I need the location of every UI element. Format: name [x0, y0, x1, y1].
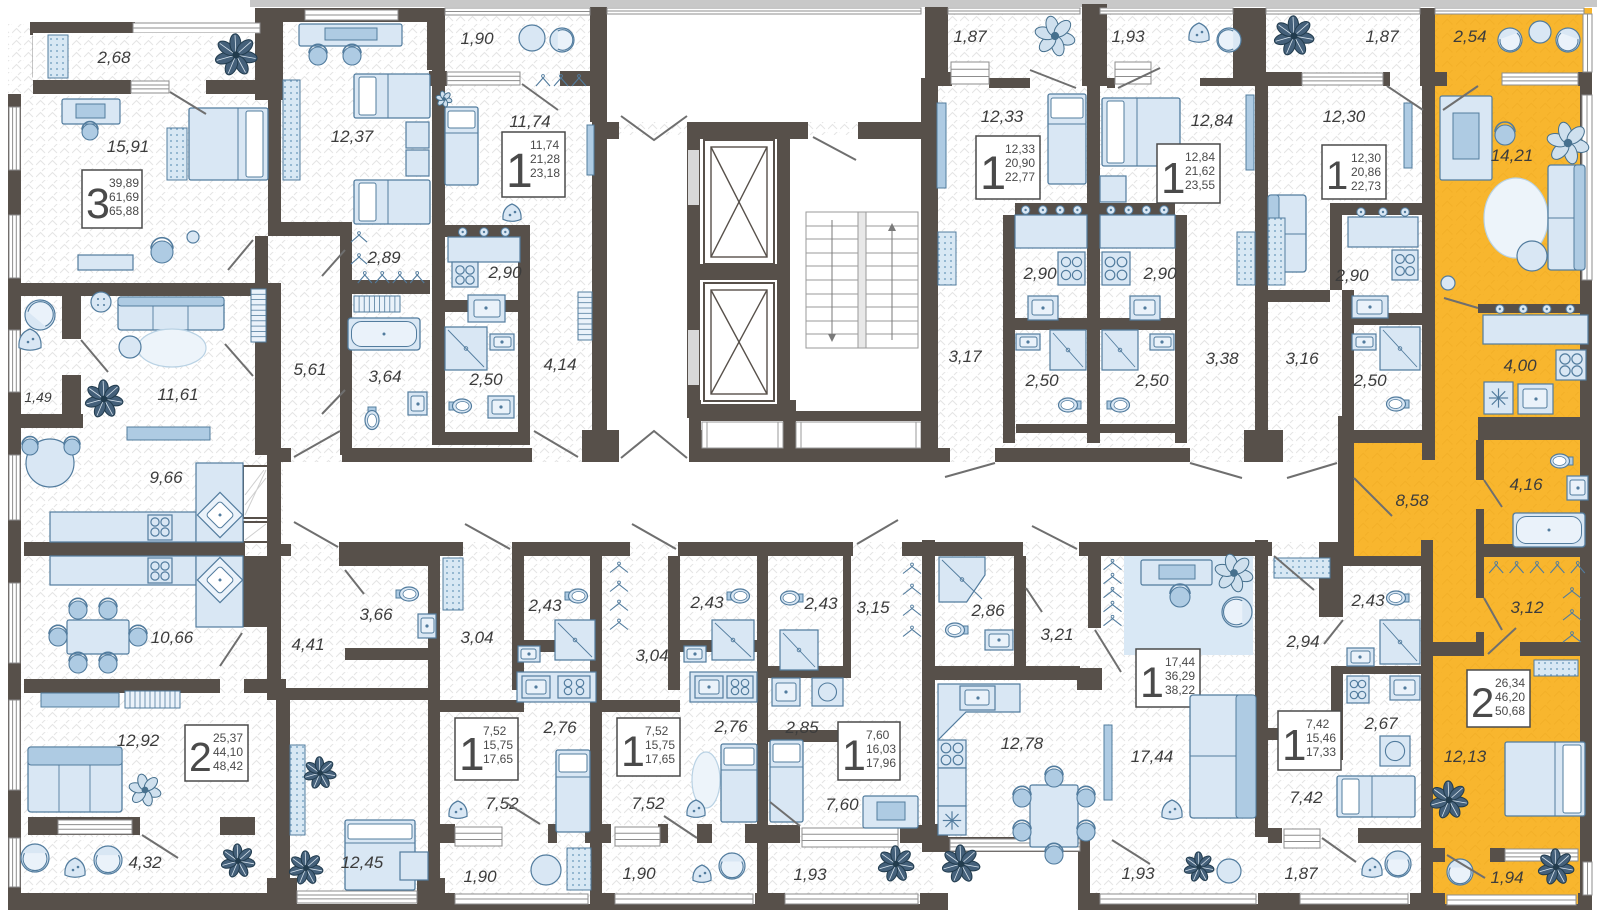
svg-text:2,43: 2,43 — [689, 593, 724, 612]
svg-text:1: 1 — [506, 145, 533, 198]
svg-text:1: 1 — [1282, 721, 1306, 770]
svg-text:2,90: 2,90 — [1334, 266, 1369, 285]
svg-text:1,93: 1,93 — [1111, 27, 1145, 46]
svg-text:9,66: 9,66 — [149, 468, 183, 487]
svg-text:17,65: 17,65 — [483, 752, 513, 766]
svg-text:20,86: 20,86 — [1351, 165, 1381, 179]
svg-text:11,61: 11,61 — [157, 385, 198, 404]
svg-text:4,16: 4,16 — [1509, 475, 1543, 494]
svg-text:2,90: 2,90 — [1142, 264, 1177, 283]
svg-text:2,76: 2,76 — [542, 718, 577, 737]
svg-text:2,43: 2,43 — [1350, 591, 1385, 610]
svg-text:15,75: 15,75 — [645, 738, 675, 752]
svg-text:7,60: 7,60 — [866, 728, 890, 742]
svg-text:1: 1 — [1140, 659, 1164, 707]
svg-text:15,75: 15,75 — [483, 738, 513, 752]
svg-text:4,41: 4,41 — [291, 635, 324, 654]
svg-text:11,74: 11,74 — [509, 112, 550, 131]
svg-text:4,14: 4,14 — [543, 355, 576, 374]
svg-text:21,62: 21,62 — [1185, 164, 1215, 178]
svg-text:1,90: 1,90 — [463, 867, 497, 886]
svg-text:1,93: 1,93 — [1121, 864, 1155, 883]
svg-text:2,43: 2,43 — [803, 594, 838, 613]
svg-text:8,58: 8,58 — [1395, 491, 1429, 510]
svg-text:12,45: 12,45 — [341, 853, 384, 872]
svg-text:17,96: 17,96 — [866, 756, 896, 770]
svg-text:17,44: 17,44 — [1131, 747, 1174, 766]
svg-text:2,50: 2,50 — [1134, 371, 1169, 390]
svg-text:2: 2 — [189, 734, 212, 780]
svg-text:7,42: 7,42 — [1306, 717, 1330, 731]
svg-text:22,73: 22,73 — [1351, 179, 1381, 193]
svg-text:1,87: 1,87 — [953, 27, 987, 46]
svg-text:17,33: 17,33 — [1306, 745, 1336, 759]
svg-text:1,49: 1,49 — [24, 389, 51, 405]
svg-text:2,85: 2,85 — [784, 718, 819, 737]
svg-text:15,91: 15,91 — [107, 137, 150, 156]
svg-text:1: 1 — [621, 728, 645, 776]
svg-text:11,74: 11,74 — [530, 138, 559, 152]
svg-text:14,21: 14,21 — [1491, 146, 1534, 165]
svg-text:12,30: 12,30 — [1351, 151, 1381, 165]
svg-text:3,64: 3,64 — [368, 367, 401, 386]
svg-text:3,17: 3,17 — [948, 347, 982, 366]
svg-text:7,42: 7,42 — [1289, 788, 1323, 807]
svg-text:2,90: 2,90 — [487, 263, 522, 282]
svg-text:3,04: 3,04 — [460, 628, 493, 647]
svg-text:3: 3 — [86, 180, 110, 228]
svg-text:3,04: 3,04 — [635, 646, 668, 665]
svg-text:36,29: 36,29 — [1165, 669, 1195, 683]
svg-text:2: 2 — [1471, 679, 1494, 726]
svg-text:12,37: 12,37 — [331, 127, 374, 146]
svg-text:20,90: 20,90 — [1005, 156, 1035, 170]
svg-text:12,84: 12,84 — [1191, 111, 1234, 130]
svg-text:7,52: 7,52 — [645, 724, 669, 738]
svg-text:2,90: 2,90 — [1022, 264, 1057, 283]
svg-text:39,89: 39,89 — [109, 176, 139, 190]
svg-text:1: 1 — [1326, 154, 1348, 198]
svg-text:12,30: 12,30 — [1323, 107, 1366, 126]
svg-text:21,28: 21,28 — [530, 152, 560, 166]
svg-text:3,16: 3,16 — [1285, 349, 1319, 368]
svg-text:16,03: 16,03 — [866, 742, 896, 756]
svg-text:12,84: 12,84 — [1185, 150, 1215, 164]
svg-text:1,94: 1,94 — [1490, 868, 1523, 887]
svg-text:3,12: 3,12 — [1510, 598, 1544, 617]
svg-text:48,42: 48,42 — [213, 759, 243, 773]
svg-text:2,89: 2,89 — [366, 248, 401, 267]
svg-text:23,18: 23,18 — [530, 166, 560, 180]
svg-text:2,54: 2,54 — [1452, 27, 1486, 46]
svg-text:25,37: 25,37 — [213, 731, 243, 745]
svg-text:12,92: 12,92 — [117, 731, 160, 750]
svg-text:50,68: 50,68 — [1495, 704, 1525, 718]
svg-text:2,50: 2,50 — [1024, 371, 1059, 390]
svg-text:7,52: 7,52 — [485, 794, 519, 813]
svg-text:17,65: 17,65 — [645, 752, 675, 766]
svg-text:46,20: 46,20 — [1495, 690, 1525, 704]
svg-text:44,10: 44,10 — [213, 745, 243, 759]
svg-text:22,77: 22,77 — [1005, 170, 1035, 184]
svg-text:2,86: 2,86 — [970, 601, 1005, 620]
svg-text:2,50: 2,50 — [468, 370, 503, 389]
svg-text:3,15: 3,15 — [856, 598, 890, 617]
svg-text:1,93: 1,93 — [793, 865, 827, 884]
svg-text:2,67: 2,67 — [1363, 714, 1398, 733]
svg-text:23,55: 23,55 — [1185, 178, 1215, 192]
svg-text:1,87: 1,87 — [1284, 864, 1318, 883]
svg-text:12,13: 12,13 — [1444, 747, 1487, 766]
svg-text:7,52: 7,52 — [631, 794, 665, 813]
svg-text:1,90: 1,90 — [622, 864, 656, 883]
svg-text:1,90: 1,90 — [460, 29, 494, 48]
svg-text:12,33: 12,33 — [981, 107, 1024, 126]
svg-text:2,50: 2,50 — [1352, 371, 1387, 390]
svg-text:1: 1 — [459, 728, 485, 780]
svg-text:3,21: 3,21 — [1040, 625, 1073, 644]
svg-text:2,68: 2,68 — [96, 48, 131, 67]
svg-text:5,61: 5,61 — [293, 360, 326, 379]
svg-text:10,66: 10,66 — [151, 628, 194, 647]
svg-text:4,32: 4,32 — [128, 853, 162, 872]
svg-text:1: 1 — [1161, 154, 1185, 203]
svg-text:1,87: 1,87 — [1365, 27, 1399, 46]
svg-text:4,00: 4,00 — [1503, 356, 1537, 375]
svg-text:65,88: 65,88 — [109, 204, 139, 218]
svg-text:15,46: 15,46 — [1306, 731, 1336, 745]
svg-text:61,69: 61,69 — [109, 190, 139, 204]
svg-text:2,94: 2,94 — [1285, 632, 1319, 651]
svg-text:2,76: 2,76 — [713, 717, 748, 736]
svg-text:12,78: 12,78 — [1001, 734, 1044, 753]
svg-text:17,44: 17,44 — [1165, 655, 1195, 669]
svg-text:7,52: 7,52 — [483, 724, 507, 738]
svg-text:1: 1 — [842, 732, 866, 780]
svg-text:2,43: 2,43 — [527, 596, 562, 615]
svg-text:26,34: 26,34 — [1495, 676, 1525, 690]
svg-text:12,33: 12,33 — [1005, 142, 1035, 156]
svg-text:7,60: 7,60 — [825, 795, 859, 814]
svg-text:3,66: 3,66 — [359, 605, 393, 624]
svg-text:3,38: 3,38 — [1205, 349, 1239, 368]
svg-text:1: 1 — [980, 146, 1006, 199]
